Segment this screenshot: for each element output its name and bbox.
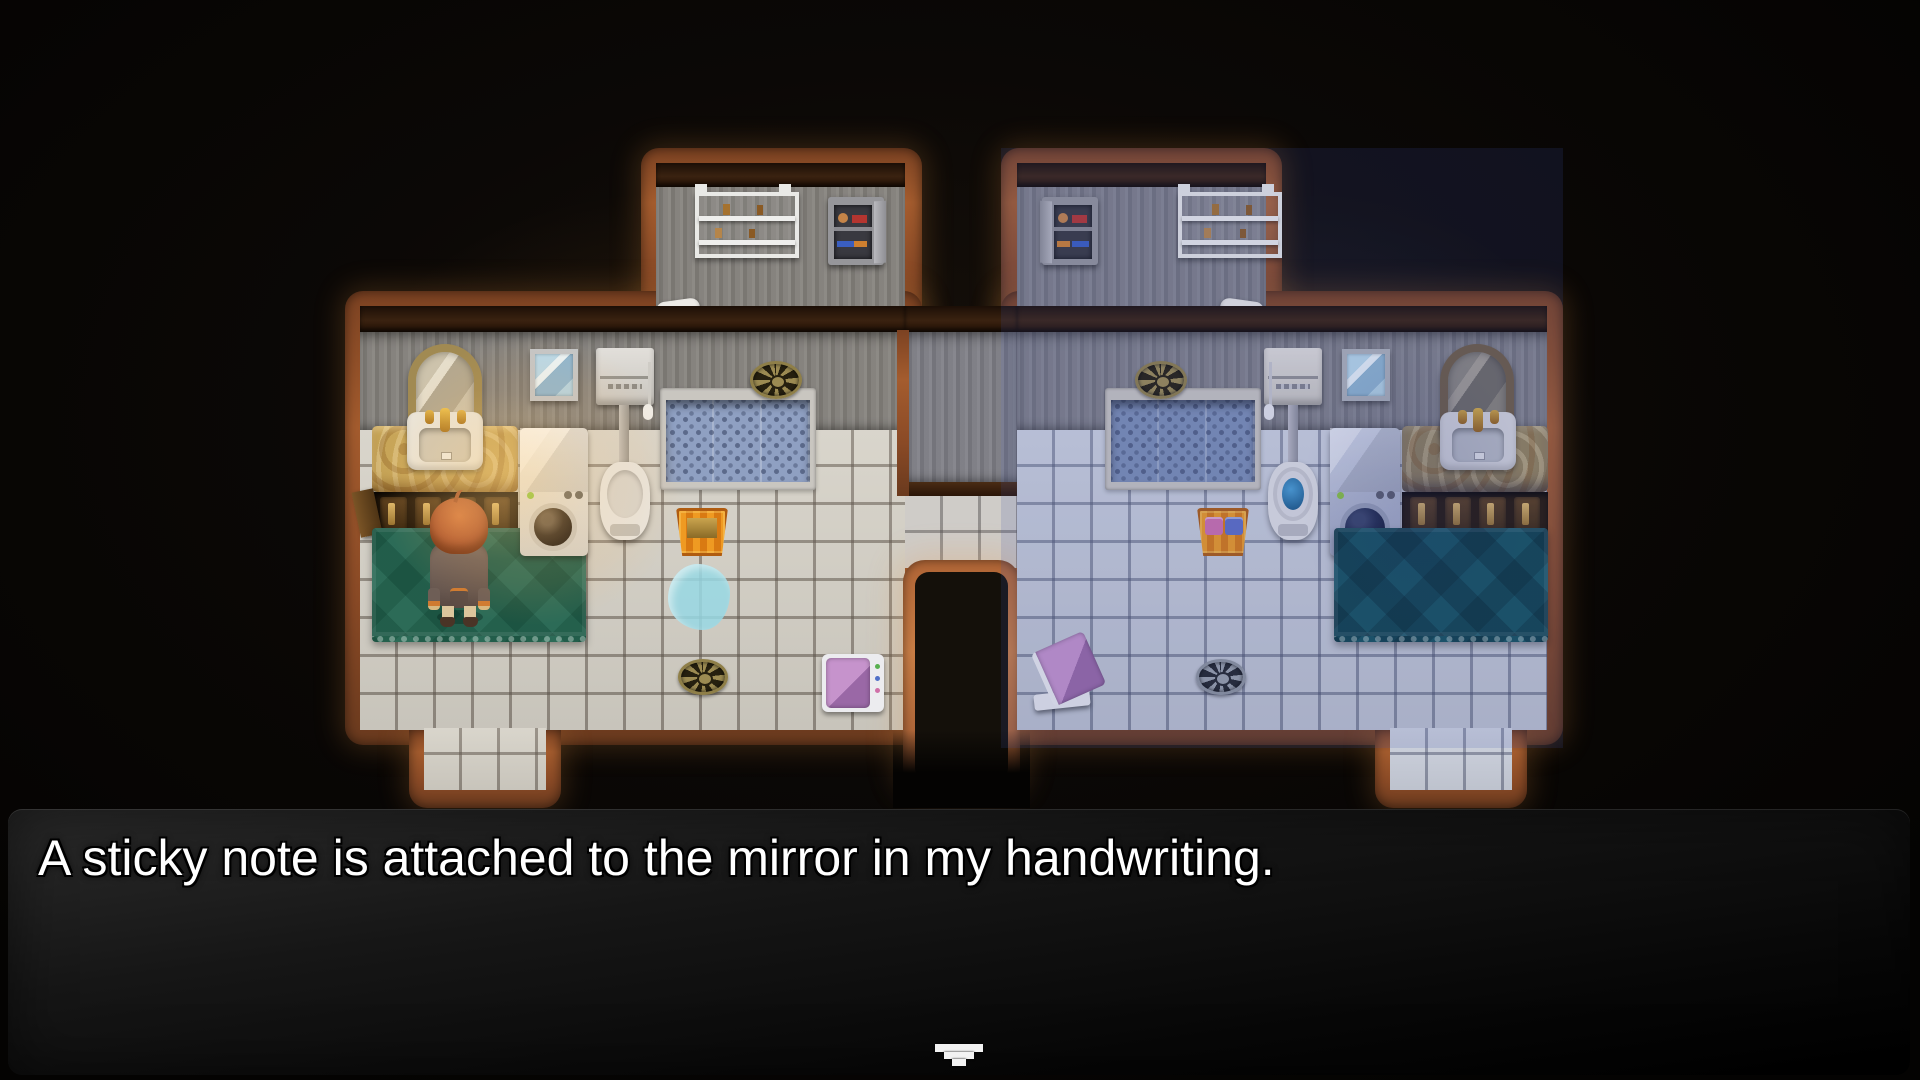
shelf-item <box>1246 205 1252 215</box>
right-small-mirror <box>1342 349 1390 401</box>
character-boot <box>440 617 455 627</box>
right-bottom-drain <box>1196 659 1246 695</box>
left-sink <box>407 412 483 470</box>
right-sunken-bath <box>1105 388 1261 490</box>
mid-corridor-floor <box>905 496 1017 568</box>
red-box-item <box>1072 215 1087 223</box>
right-wall-shelf <box>1178 192 1282 258</box>
left-small-mirror <box>530 349 578 401</box>
right-toilet-pull-cord <box>1269 362 1272 406</box>
shelf-board <box>1182 240 1278 245</box>
left-medicine-cabinet <box>828 197 884 265</box>
shelf-board <box>1182 216 1278 221</box>
left-bathroom-scale <box>822 654 884 712</box>
mid-wall-edge <box>897 330 909 496</box>
player-character <box>428 496 490 626</box>
right-bathroom-scale-tilted <box>1032 638 1098 714</box>
mid-wall-trim <box>905 306 1017 332</box>
washer-lid <box>1330 428 1400 492</box>
mid-passage-fade <box>893 730 1030 808</box>
tank-lid-line <box>1268 376 1318 379</box>
tank-buttons <box>1276 384 1310 389</box>
shelf-mount <box>779 184 791 194</box>
red-box-item <box>852 215 867 223</box>
right-alcove-wall-trim <box>1017 163 1266 187</box>
left-laundry-basket <box>676 508 728 556</box>
blue-tube-item <box>1072 241 1089 247</box>
gold-tap-knob <box>1458 410 1467 424</box>
continue-arrow-icon[interactable] <box>935 1044 983 1066</box>
washer-knob <box>564 491 572 499</box>
right-medicine-cabinet <box>1042 197 1098 265</box>
water-puddle <box>668 564 730 630</box>
right-doorway-floor <box>1390 728 1512 790</box>
left-bottom-drain <box>678 659 728 695</box>
tank-lid-line <box>600 376 650 379</box>
mid-wall-sill <box>905 482 1017 496</box>
sink-drain-hole <box>1474 452 1485 460</box>
cabinet-open-door <box>1040 201 1052 264</box>
washer-power-light <box>1337 492 1344 499</box>
gold-tap-knob <box>1490 410 1499 424</box>
character-pocket <box>450 588 468 605</box>
left-wall-shelf <box>695 192 799 258</box>
folded-clothes-pink <box>1205 517 1223 535</box>
scale-face <box>826 658 870 708</box>
left-room-wall-trim <box>360 306 905 332</box>
cabinet-shelf <box>834 227 872 231</box>
left-washing-machine <box>520 428 588 556</box>
toilet-base <box>1278 524 1308 536</box>
scale-indicator-dot <box>875 688 880 693</box>
tank-buttons <box>608 384 642 389</box>
cabinet-interior <box>1054 205 1092 259</box>
right-top-drain <box>1135 361 1187 399</box>
left-toilet-tank <box>596 348 654 405</box>
toilet-base <box>610 524 640 536</box>
jar-item <box>1058 213 1068 223</box>
left-sunken-bath <box>660 388 816 490</box>
sink-drain-hole <box>441 452 452 460</box>
toilet-water <box>1282 478 1304 510</box>
shelf-board <box>699 240 795 245</box>
orange-tube-item <box>1057 241 1070 247</box>
right-room-wall-trim <box>1017 306 1547 332</box>
left-top-drain <box>750 361 802 399</box>
character-boot <box>463 617 478 627</box>
mid-wall <box>905 332 1017 482</box>
shelf-board <box>699 216 795 221</box>
cabinet-open-door <box>874 201 886 264</box>
dialogue-text: A sticky note is attached to the mirror … <box>38 829 1878 887</box>
shelf-item <box>757 205 763 215</box>
shelf-item <box>1212 204 1219 215</box>
shelf-mount <box>1178 184 1190 194</box>
jar-item <box>838 213 848 223</box>
shelf-item <box>723 204 730 215</box>
washer-knob <box>1376 491 1384 499</box>
left-toilet-pull-handle <box>643 404 653 420</box>
washer-knob <box>1387 491 1395 499</box>
basket-interior <box>687 518 717 538</box>
left-toilet-pipe <box>619 405 629 465</box>
washer-door <box>529 503 577 551</box>
blue-tube-item <box>837 241 854 247</box>
scale-indicator-dot <box>875 676 880 681</box>
shelf-item <box>1240 229 1246 238</box>
left-toilet-pull-cord <box>648 362 651 406</box>
right-toilet-pull-handle <box>1264 404 1274 420</box>
toilet-lid <box>607 470 643 518</box>
left-toilet-bowl <box>600 462 650 540</box>
shelf-mount <box>695 184 707 194</box>
shelf-item <box>715 228 722 238</box>
bath-water-pattern <box>666 400 810 482</box>
scale-indicator-dot <box>875 664 880 669</box>
gold-faucet <box>1473 408 1483 432</box>
right-bath-rug <box>1334 528 1548 642</box>
washer-lid <box>520 428 588 492</box>
cabinet-interior <box>834 205 872 259</box>
game-viewport[interactable]: A sticky note is attached to the mirror … <box>0 0 1920 1080</box>
cabinet-shelf <box>1054 227 1092 231</box>
bath-water-pattern <box>1111 400 1255 482</box>
arrow-pixel-row <box>944 1052 974 1059</box>
arrow-pixel-row <box>935 1044 983 1052</box>
arrow-pixel-row <box>952 1059 966 1066</box>
shelf-mount <box>1262 184 1274 194</box>
shelf-item <box>749 229 755 238</box>
gold-faucet <box>440 408 450 432</box>
character-cuff <box>478 588 490 610</box>
character-cuff <box>428 588 440 610</box>
right-toilet-bowl <box>1268 462 1318 540</box>
washer-knob <box>575 491 583 499</box>
folded-clothes-blue <box>1225 517 1243 535</box>
right-toilet-tank <box>1264 348 1322 405</box>
gold-tap-knob <box>425 410 434 424</box>
left-doorway-floor <box>424 728 546 790</box>
shelf-item <box>1204 228 1211 238</box>
gold-tap-knob <box>457 410 466 424</box>
right-toilet-pipe <box>1288 405 1298 465</box>
orange-tube-item <box>854 241 867 247</box>
right-laundry-basket <box>1197 508 1249 556</box>
dialogue-box[interactable]: A sticky note is attached to the mirror … <box>8 809 1910 1075</box>
right-sink <box>1440 412 1516 470</box>
character-hair <box>430 498 488 554</box>
washer-power-light <box>527 492 534 499</box>
